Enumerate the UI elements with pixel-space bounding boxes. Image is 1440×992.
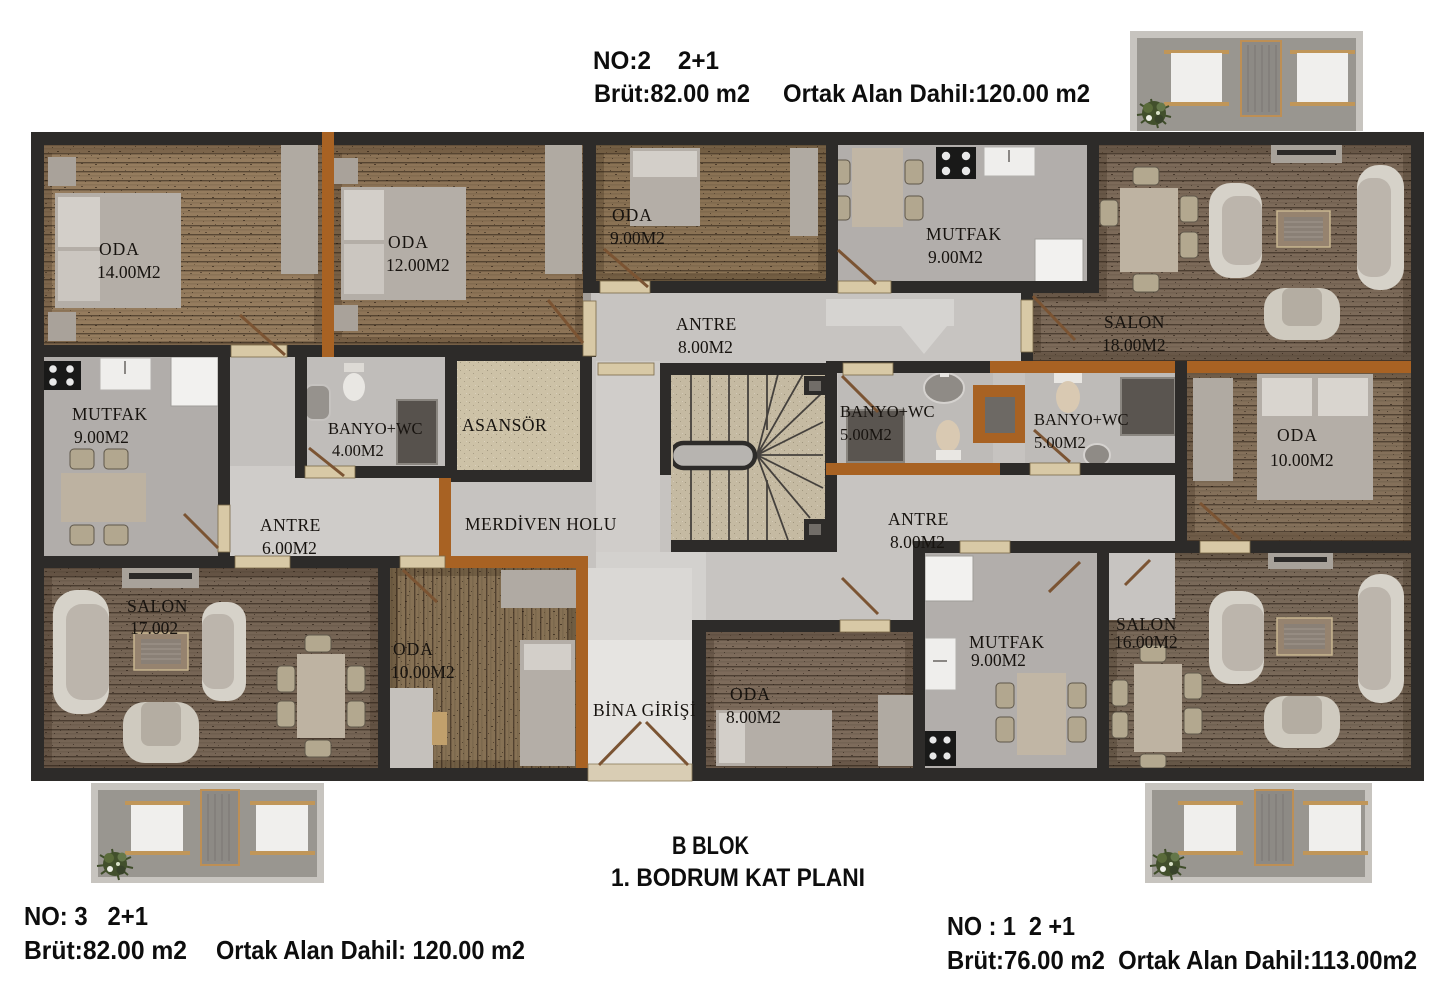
svg-text:NO: 3 2+1: NO: 3 2+1 [24,901,148,931]
svg-text:ODA: ODA [99,239,140,259]
svg-text:14.00M2: 14.00M2 [97,262,161,282]
svg-text:Brüt:82.00 m2: Brüt:82.00 m2 [24,935,187,965]
svg-text:12.00M2: 12.00M2 [386,255,450,275]
svg-text:6.00M2: 6.00M2 [262,538,317,558]
svg-text:ASANSÖR: ASANSÖR [462,415,547,435]
svg-text:5.00M2: 5.00M2 [1034,433,1086,452]
svg-text:Brüt:82.00 m2: Brüt:82.00 m2 [594,80,750,108]
svg-text:9.00M2: 9.00M2 [971,650,1026,670]
svg-text:ANTRE: ANTRE [260,515,321,535]
svg-text:9.00M2: 9.00M2 [74,427,129,447]
svg-text:ODA: ODA [730,684,771,704]
svg-text:8.00M2: 8.00M2 [890,532,945,552]
svg-text:ODA: ODA [1277,425,1318,445]
svg-text:ODA: ODA [388,232,429,252]
svg-text:16.00M2: 16.00M2 [1114,632,1178,652]
svg-text:Ortak Alan Dahil:120.00 m2: Ortak Alan Dahil:120.00 m2 [783,80,1090,108]
svg-text:SALON: SALON [1104,312,1165,332]
svg-text:BANYO+WC: BANYO+WC [840,402,935,421]
svg-text:B BLOK: B BLOK [672,832,749,860]
svg-text:5.00M2: 5.00M2 [840,425,892,444]
svg-text:BANYO+WC: BANYO+WC [328,419,423,438]
svg-text:MUTFAK: MUTFAK [969,632,1045,652]
svg-text:ODA: ODA [393,639,434,659]
svg-text:NO : 1 2 +1: NO : 1 2 +1 [947,911,1075,941]
svg-text:8.00M2: 8.00M2 [726,707,781,727]
svg-text:ANTRE: ANTRE [676,314,737,334]
svg-text:MUTFAK: MUTFAK [926,224,1002,244]
svg-text:BİNA GİRİŞİ: BİNA GİRİŞİ [593,700,696,720]
svg-text:1. BODRUM KAT PLANI: 1. BODRUM KAT PLANI [611,864,865,892]
svg-text:18.00M2: 18.00M2 [1102,335,1166,355]
svg-text:Brüt:76.00 m2 Ortak Alan Dahi: Brüt:76.00 m2 Ortak Alan Dahil:113.00m2 [947,945,1417,975]
svg-text:8.00M2: 8.00M2 [678,337,733,357]
svg-text:MERDİVEN HOLU: MERDİVEN HOLU [465,514,617,534]
svg-text:ANTRE: ANTRE [888,509,949,529]
svg-text:SALON: SALON [1116,614,1177,634]
svg-text:ODA: ODA [612,205,653,225]
svg-text:9.00M2: 9.00M2 [928,247,983,267]
svg-text:9.00M2: 9.00M2 [610,228,665,248]
svg-text:4.00M2: 4.00M2 [332,441,384,460]
svg-text:Ortak Alan Dahil: 120.00 m2: Ortak Alan Dahil: 120.00 m2 [216,935,525,965]
svg-text:17.002: 17.002 [130,618,178,638]
svg-text:SALON: SALON [127,596,188,616]
svg-text:10.00M2: 10.00M2 [1270,450,1334,470]
svg-text:10.00M2: 10.00M2 [391,662,455,682]
svg-text:MUTFAK: MUTFAK [72,404,148,424]
svg-text:NO:2 2+1: NO:2 2+1 [593,47,719,75]
svg-text:BANYO+WC: BANYO+WC [1034,410,1129,429]
